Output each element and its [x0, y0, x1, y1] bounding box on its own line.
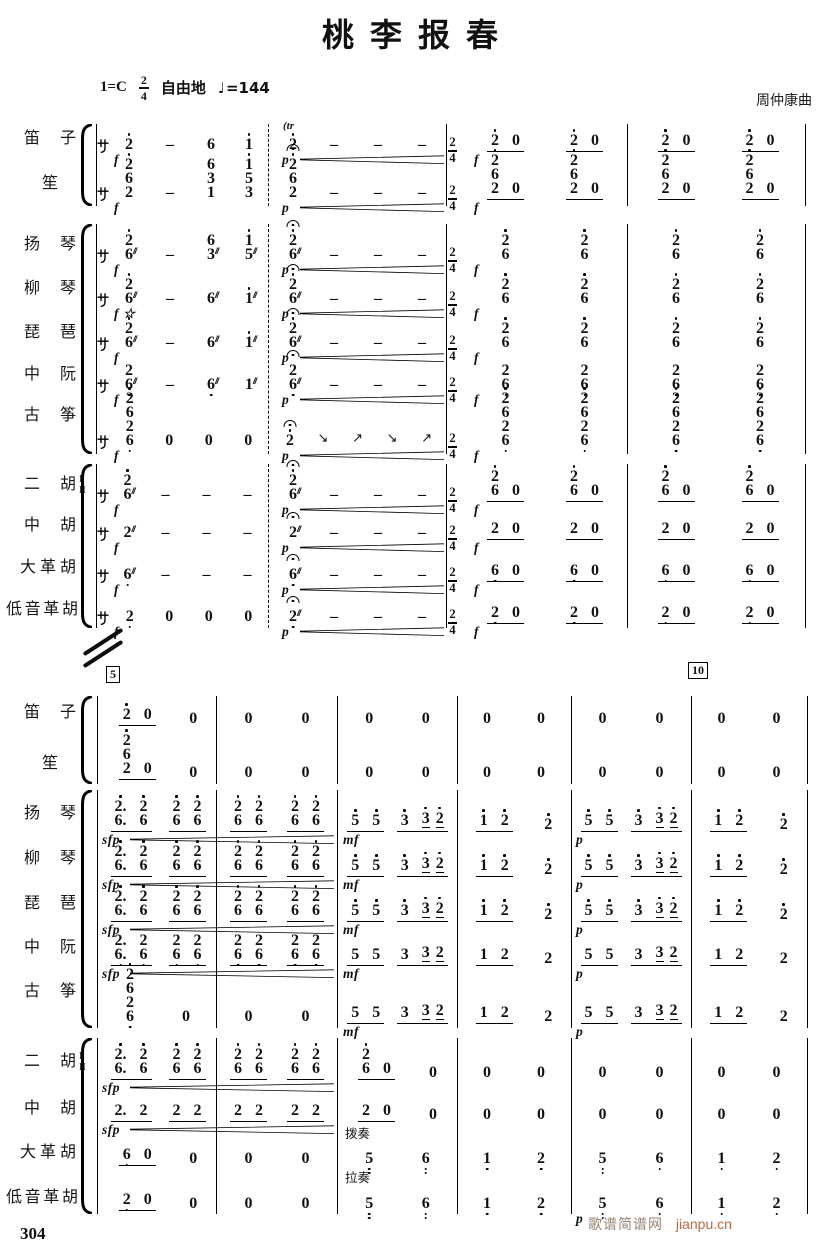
- note: 5: [606, 814, 614, 828]
- beat: 26: [756, 278, 764, 306]
- octave-dot-high: [196, 795, 199, 798]
- note: 2: [544, 818, 552, 832]
- octave-dot-low: [759, 448, 762, 452]
- octave-dot-high: [573, 465, 576, 468]
- beat: 0: [773, 712, 781, 726]
- octave-dot-high: [142, 885, 145, 888]
- beat: –: [371, 568, 385, 582]
- beat: 22: [287, 1104, 324, 1122]
- dash-prolongation: –: [415, 568, 429, 582]
- beat: 260: [487, 470, 524, 502]
- note: 0: [512, 484, 520, 498]
- note: 0: [512, 522, 520, 536]
- beat: 0: [483, 712, 491, 726]
- measure: 200: [341, 1096, 454, 1122]
- note: 2: [544, 1010, 552, 1024]
- note: 5: [365, 1197, 373, 1211]
- beat: 20: [487, 134, 524, 152]
- beat: 0: [537, 766, 545, 780]
- note: 0: [656, 766, 664, 780]
- beat: –: [159, 488, 173, 502]
- octave-dot-high: [292, 469, 295, 472]
- beat: 55: [347, 1006, 384, 1024]
- dash-prolongation: –: [327, 610, 341, 624]
- staff-row-guzheng: 古筝262600055332mf12255332p122: [0, 960, 820, 1024]
- beat: 2: [286, 434, 294, 448]
- note: 0: [189, 1197, 197, 1211]
- note: 3: [635, 904, 643, 918]
- beat: 26: [502, 278, 510, 306]
- dash-prolongation: –: [371, 610, 385, 624]
- note: 2: [670, 902, 678, 919]
- octave-dot-high: [547, 903, 550, 906]
- note: 26//: [289, 278, 297, 306]
- beat: 60: [742, 564, 779, 582]
- dynamic-marking: p: [282, 200, 289, 216]
- note: 0: [773, 712, 781, 726]
- octave-dot-high: [494, 465, 497, 468]
- dash-prolongation: –: [415, 292, 429, 306]
- tremolo-icon: //: [215, 290, 218, 300]
- beat: –: [327, 610, 341, 624]
- note: 0: [767, 606, 775, 620]
- measure: 2626: [466, 272, 624, 306]
- note: 5: [599, 1197, 607, 1211]
- note: 2: [286, 434, 294, 448]
- octave-dot-high: [237, 840, 240, 843]
- note: 1: [483, 1152, 491, 1166]
- octave-dot-low: [128, 624, 131, 628]
- beat: 0: [429, 1066, 437, 1080]
- measure: 12: [460, 1185, 568, 1211]
- score-page: 桃李报春 1=C 2 4 自由地 ♩ =144 周仲康曲 笛子242–61f(t…: [0, 0, 820, 1253]
- beat: 26: [581, 234, 589, 262]
- note: 0: [302, 712, 310, 726]
- octave-dot-high: [248, 229, 251, 232]
- octave-dot-high: [175, 1043, 178, 1046]
- glissando-icon: ↗: [421, 431, 432, 446]
- beat: 0: [189, 712, 197, 726]
- crescendo-hairpin: [300, 451, 444, 461]
- note: 3: [656, 812, 664, 829]
- note: 0: [429, 1108, 437, 1122]
- instrument-label-erhu: 二胡: [24, 1052, 76, 1072]
- note: 5: [585, 814, 593, 828]
- note: 26: [194, 890, 202, 918]
- beat: 0: [165, 434, 173, 448]
- beat: 20: [119, 1193, 156, 1211]
- measure: 122: [460, 960, 568, 1024]
- dash-prolongation: –: [327, 292, 341, 306]
- staff-row-guzheng: 古筝242626000f2↘↗↘↗p26262626f26262626: [0, 384, 820, 448]
- note: 2.6.: [115, 1048, 127, 1076]
- note: 26//: [289, 234, 297, 262]
- note: 26: [140, 934, 148, 962]
- octave-dot-high: [294, 885, 297, 888]
- note: 2: [570, 606, 578, 620]
- beat: 332: [397, 857, 448, 878]
- note: 3: [635, 859, 643, 873]
- note: 26: [291, 934, 299, 962]
- note: 26: [234, 890, 242, 918]
- note: 262: [570, 154, 578, 196]
- instrument-label-erhu: 二胡: [24, 475, 76, 495]
- measure: 00: [574, 1096, 688, 1122]
- note: 0: [245, 1010, 253, 1024]
- dash-prolongation: –: [415, 138, 429, 152]
- note: 0: [656, 712, 664, 726]
- note: 2: [746, 606, 754, 620]
- beat: 0: [422, 766, 430, 780]
- instrument-label-dizi: 笛子: [24, 129, 76, 149]
- octave-dot-high: [608, 809, 611, 812]
- octave-dot-low: [129, 1024, 132, 1028]
- note: 26: [756, 278, 764, 306]
- measure: 55332: [341, 960, 454, 1024]
- octave-dot-low: [540, 1166, 543, 1170]
- octave-dot-high: [126, 469, 129, 472]
- fermata-icon: [287, 220, 300, 227]
- note: 5: [606, 859, 614, 873]
- note: 6: [570, 564, 578, 578]
- note: 26: [140, 890, 148, 918]
- note: 26: [502, 322, 510, 350]
- beat: 1: [483, 1197, 491, 1211]
- dynamic-marking: f: [474, 624, 479, 640]
- octave-dot-high: [248, 133, 251, 136]
- note: 26: [312, 1048, 320, 1076]
- octave-dot-high: [375, 809, 378, 812]
- staff-row-pipa: 琵琶2.6.262626sfp2626262655332mf12255332p1…: [0, 886, 820, 922]
- note: 2: [662, 606, 670, 620]
- measure: 6060: [634, 554, 802, 582]
- beat: 0: [245, 1010, 253, 1024]
- measure: 262–631153: [110, 152, 268, 200]
- instrument-label-guzheng: 古筝: [24, 406, 76, 426]
- beat: 20: [658, 522, 695, 540]
- note: 2: [780, 908, 788, 922]
- beat: 2//: [124, 526, 132, 540]
- note: 0: [773, 766, 781, 780]
- glissando-icon: ↗: [352, 431, 363, 446]
- dash-prolongation: –: [327, 186, 341, 200]
- octave-dot-high: [248, 331, 251, 334]
- octave-dot-high: [587, 809, 590, 812]
- octave-dot-low: [775, 1166, 778, 1170]
- dash-prolongation: –: [163, 292, 177, 306]
- note: 2: [773, 1197, 781, 1211]
- measure: 2626: [634, 316, 802, 350]
- instrument-label-sheng: 笙: [24, 754, 76, 774]
- note: 262: [746, 154, 754, 196]
- beat: –: [327, 292, 341, 306]
- measure: 26//–––: [110, 468, 268, 502]
- note: 6: [123, 1148, 131, 1162]
- octave-dot-high: [717, 854, 720, 857]
- beat: 2626: [672, 392, 680, 448]
- instrument-label-liuqin: 柳琴: [24, 279, 76, 299]
- glissando-icon: ↘: [387, 431, 398, 446]
- note: 262: [125, 158, 133, 200]
- beat: 0: [718, 1108, 726, 1122]
- beat: 0: [302, 766, 310, 780]
- note: 6: [662, 564, 670, 578]
- note: 26: [194, 1048, 202, 1076]
- note: 262: [289, 158, 297, 200]
- note: 5: [606, 904, 614, 918]
- beat: –: [327, 248, 341, 262]
- octave-dot-high: [748, 129, 751, 132]
- note: 2: [291, 1104, 299, 1118]
- beat: 2: [773, 1152, 781, 1166]
- free-meter-icon: [97, 248, 109, 263]
- measure: 26262626: [220, 796, 334, 832]
- dynamic-marking: f: [474, 200, 479, 216]
- beat: 2.2: [111, 1104, 152, 1122]
- measure: 00: [694, 700, 804, 726]
- measure: 00: [460, 1044, 568, 1080]
- beat: 26//: [289, 234, 297, 262]
- note: 0: [767, 134, 775, 148]
- tremolo-icon: //: [133, 290, 136, 300]
- beat: 2: [537, 1152, 545, 1166]
- octave-dot-high: [128, 229, 131, 232]
- staff-row-sheng: 笙262000000000000: [0, 730, 820, 780]
- note: 0: [599, 766, 607, 780]
- note: 0: [683, 182, 691, 196]
- dash-prolongation: –: [327, 488, 341, 502]
- dynamic-marking: f: [114, 200, 119, 216]
- beat: 12: [710, 814, 747, 832]
- octave-dot-low: [748, 620, 751, 624]
- note: 26: [234, 1048, 242, 1076]
- octave-dot-high: [664, 129, 667, 132]
- note: 2: [670, 1004, 678, 1021]
- staff-row-zhonghu: 中胡2.222sfp2222200拨奏000000: [0, 1096, 820, 1122]
- beat: 2626: [126, 392, 134, 448]
- beat: 2620: [566, 154, 603, 200]
- beat: 2: [773, 1197, 781, 1211]
- note: 2: [780, 863, 788, 877]
- beat: 0: [537, 1066, 545, 1080]
- octave-dot-high: [504, 229, 507, 232]
- note: 26: [140, 800, 148, 828]
- beat: 20: [742, 134, 779, 152]
- dynamic-marking: f: [114, 448, 119, 464]
- tremolo-icon: //: [253, 290, 256, 300]
- measure: 600: [102, 1140, 214, 1166]
- beat: 26//: [289, 474, 297, 502]
- octave-dot-high: [237, 795, 240, 798]
- beat: –: [371, 610, 385, 624]
- time-signature: 24: [448, 184, 457, 214]
- note: 2: [735, 1006, 743, 1020]
- dash-prolongation: –: [415, 526, 429, 540]
- octave-dot-high: [294, 1043, 297, 1046]
- note: 26: [502, 278, 510, 306]
- beat: 332: [631, 902, 682, 923]
- note: 2: [255, 1104, 263, 1118]
- note: 1: [480, 859, 488, 873]
- octave-dot-high: [119, 840, 122, 843]
- beat: 2.6.26: [111, 800, 152, 832]
- measure: 2.222: [102, 1096, 214, 1122]
- octave-dot-high: [292, 153, 295, 156]
- octave-dot-low: [748, 578, 751, 582]
- octave-dot-high: [573, 149, 576, 152]
- octave-dot-low: [125, 1207, 128, 1211]
- octave-dot-high: [175, 795, 178, 798]
- beat: 332: [631, 812, 682, 833]
- octave-dot-high: [438, 807, 441, 810]
- note: 6: [746, 564, 754, 578]
- octave-dot-low: [424, 1211, 427, 1219]
- beat: 2626: [756, 392, 764, 448]
- beat: 2626: [287, 890, 324, 922]
- note: 5: [372, 1006, 380, 1020]
- note: 2626: [756, 392, 764, 448]
- octave-dot-high: [504, 387, 507, 390]
- note: 2: [670, 812, 678, 829]
- octave-dot-low: [424, 1166, 427, 1174]
- note: 3: [422, 902, 430, 919]
- octave-dot-high: [375, 899, 378, 902]
- beat: –: [163, 138, 177, 152]
- octave-dot-high: [354, 899, 357, 902]
- octave-dot-high: [504, 317, 507, 320]
- octave-dot-high: [128, 153, 131, 156]
- beat: 5: [599, 1197, 607, 1211]
- note: 0: [245, 712, 253, 726]
- note: 0: [683, 606, 691, 620]
- octave-dot-high: [196, 885, 199, 888]
- free-meter-icon: [97, 336, 109, 351]
- beat: –: [163, 336, 177, 350]
- instrument-part-numbers: III: [79, 475, 86, 496]
- free-meter-icon: [97, 186, 109, 201]
- note: 0: [718, 712, 726, 726]
- beat: 20: [487, 522, 524, 540]
- note: 2: [746, 522, 754, 536]
- measure: 2//–––: [274, 512, 444, 540]
- note: 2: [234, 1104, 242, 1118]
- note: 2: [501, 904, 509, 918]
- fermata-icon: [287, 144, 300, 151]
- beat: 2//: [289, 610, 297, 624]
- tremolo-icon: //: [253, 246, 256, 256]
- beat: 6//: [124, 568, 132, 582]
- measure: 2020: [634, 126, 802, 152]
- octave-dot-high: [248, 153, 251, 156]
- note: 262: [662, 154, 670, 196]
- measure: 12: [694, 1185, 804, 1211]
- note: 26: [312, 890, 320, 918]
- beat: 2//: [289, 526, 297, 540]
- note: 2: [140, 1104, 148, 1118]
- note: 0: [144, 1193, 152, 1207]
- beat: –: [163, 186, 177, 200]
- beat: ↗: [421, 431, 432, 448]
- octave-dot-high: [292, 133, 295, 136]
- crescendo-hairpin: [300, 203, 444, 213]
- note: 26//: [289, 322, 297, 350]
- octave-dot-high: [608, 854, 611, 857]
- note: 26: [362, 1048, 370, 1076]
- measure: 6//–––: [110, 554, 268, 582]
- instrument-label-zhonghu: 中胡: [24, 516, 76, 536]
- note: 2.: [115, 1104, 127, 1118]
- crescendo-hairpin: [130, 1083, 334, 1093]
- beat: 332: [397, 902, 448, 923]
- measure: 00: [460, 730, 568, 780]
- note: 2: [780, 818, 788, 832]
- beat: 26//: [124, 474, 132, 502]
- note: 2626: [581, 392, 589, 448]
- beat: 2626: [169, 800, 206, 832]
- beat: 26: [502, 322, 510, 350]
- measure: 26//–––: [274, 316, 444, 350]
- note: 2: [491, 134, 499, 148]
- beat: 26//: [289, 278, 297, 306]
- note: 6//: [289, 568, 297, 582]
- time-signature: 24: [448, 566, 457, 596]
- instrument-label-yangqin: 扬琴: [24, 235, 76, 255]
- beat: 2: [126, 610, 134, 624]
- octave-dot-high: [672, 852, 675, 855]
- beat: –: [200, 568, 214, 582]
- beat: 26: [672, 278, 680, 306]
- octave-dot-high: [294, 795, 297, 798]
- octave-dot-high: [675, 317, 678, 320]
- note: 26: [173, 1048, 181, 1076]
- beat: –: [371, 186, 385, 200]
- glissando-icon: ↘: [318, 431, 329, 446]
- note: 0: [245, 1197, 253, 1211]
- tremolo-icon: //: [132, 486, 135, 496]
- beat: 20: [358, 1104, 395, 1122]
- note: 2: [544, 863, 552, 877]
- beat: 332: [631, 1004, 682, 1025]
- beat: 0: [422, 712, 430, 726]
- note: 2: [123, 1193, 131, 1207]
- beat: 0: [773, 766, 781, 780]
- dash-prolongation: –: [327, 336, 341, 350]
- beat: 22: [169, 1104, 206, 1122]
- note: 0: [683, 484, 691, 498]
- dash-prolongation: –: [371, 526, 385, 540]
- note: 1: [714, 904, 722, 918]
- dash-prolongation: –: [415, 488, 429, 502]
- note: 5: [351, 904, 359, 918]
- beat: 0: [244, 610, 252, 624]
- dash-prolongation: –: [327, 248, 341, 262]
- measure: 26//–––: [274, 272, 444, 306]
- beat: 1: [718, 1152, 726, 1166]
- note: 0: [512, 564, 520, 578]
- beat: 2626: [169, 890, 206, 922]
- note: 26//: [124, 474, 132, 502]
- beat: 63//: [207, 234, 215, 262]
- measure: 122: [694, 960, 804, 1024]
- note: 2: [491, 606, 499, 620]
- beat: 2620: [658, 154, 695, 200]
- beat: 0: [773, 1066, 781, 1080]
- note: 1: [718, 1197, 726, 1211]
- beat: 0: [182, 1010, 190, 1024]
- measure: 2//–––: [110, 512, 268, 540]
- octave-dot-high: [129, 963, 132, 966]
- note: 0: [591, 182, 599, 196]
